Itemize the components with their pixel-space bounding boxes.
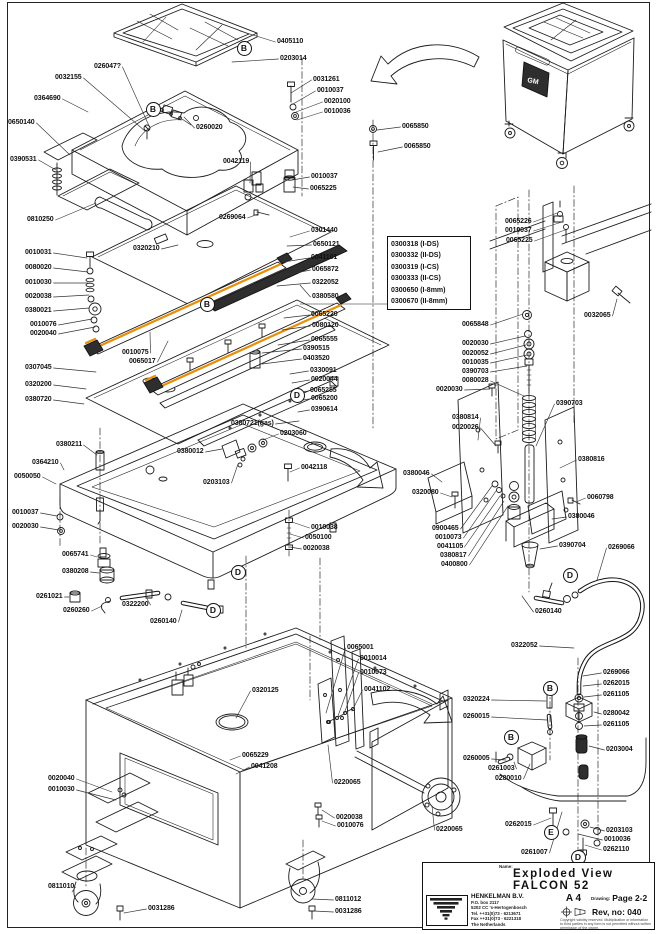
title-date-cell: Date: March 2007 [423,872,496,881]
revision-value: Rev, no: 040 [592,907,641,917]
detail-marker-b: B [504,730,519,745]
seal-bar-option: 0300319 (I-CS) [391,262,470,273]
seal-bar-option: 0300333 (II-CS) [391,273,470,284]
detail-marker-e: E [544,825,559,840]
seal-bar-option: 0300650 (I-8mm) [391,285,470,296]
fine-print-text: Copyright validity reserved. Multiplicat… [560,919,652,929]
projection-symbol-cell [558,905,589,918]
drawing-sheet: GM [0,0,658,934]
company-address-line: The Netherlands [471,922,556,927]
page-value: Page 2-2 [612,893,647,903]
seal-bar-option: 0300670 (II-8mm) [391,296,470,307]
title-scale-cell: Scale: [423,863,496,872]
drawing-title-line1: Exploded View [513,869,651,881]
seal-bar-option: 0300318 (I-DS) [391,239,470,250]
company-name: HENKELMAN B.V. [471,893,556,900]
detail-marker-b: B [543,681,558,696]
page-cell: Drawing: Page 2-2 [589,891,654,905]
henkelman-logo [426,895,468,926]
detail-marker-d: D [563,568,578,583]
title-block: Scale: Date: March 2007 Drawn by: MD Nam… [422,862,655,930]
detail-marker-b: B [237,41,252,56]
paper-size-cell: A 4 [558,891,589,905]
drawing-label: Drawing: [591,896,610,901]
detail-marker-d: D [290,388,305,403]
title-name-cell: Name: Exploded View FALCON 52 [496,863,654,891]
detail-marker-b: B [146,102,161,117]
revision-cell: Rev, no: 040 [589,905,654,918]
funnel-logo-icon [427,896,465,923]
company-cell: HENKELMAN B.V. P.O. box 21175202 CC 's-H… [423,891,558,929]
detail-marker-b: B [200,297,215,312]
detail-marker-d: D [231,565,246,580]
projection-symbol-icon [560,906,587,918]
title-drawn-cell: Drawn by: MD [423,881,496,891]
company-address: P.O. box 21175202 CC 's-HertogenboschTel… [471,900,556,927]
detail-markers-layer: BBBDDDDBBED [0,0,658,934]
seal-bar-options-box: 0300318 (I-DS)0300332 (II-DS)0300319 (I-… [387,236,471,310]
paper-size-value: A 4 [566,893,581,904]
detail-marker-d: D [206,603,221,618]
drawing-title-line2: FALCON 52 [513,881,651,892]
seal-bar-option: 0300332 (II-DS) [391,250,470,261]
fine-print-cell: Copyright validity reserved. Multiplicat… [558,918,654,929]
